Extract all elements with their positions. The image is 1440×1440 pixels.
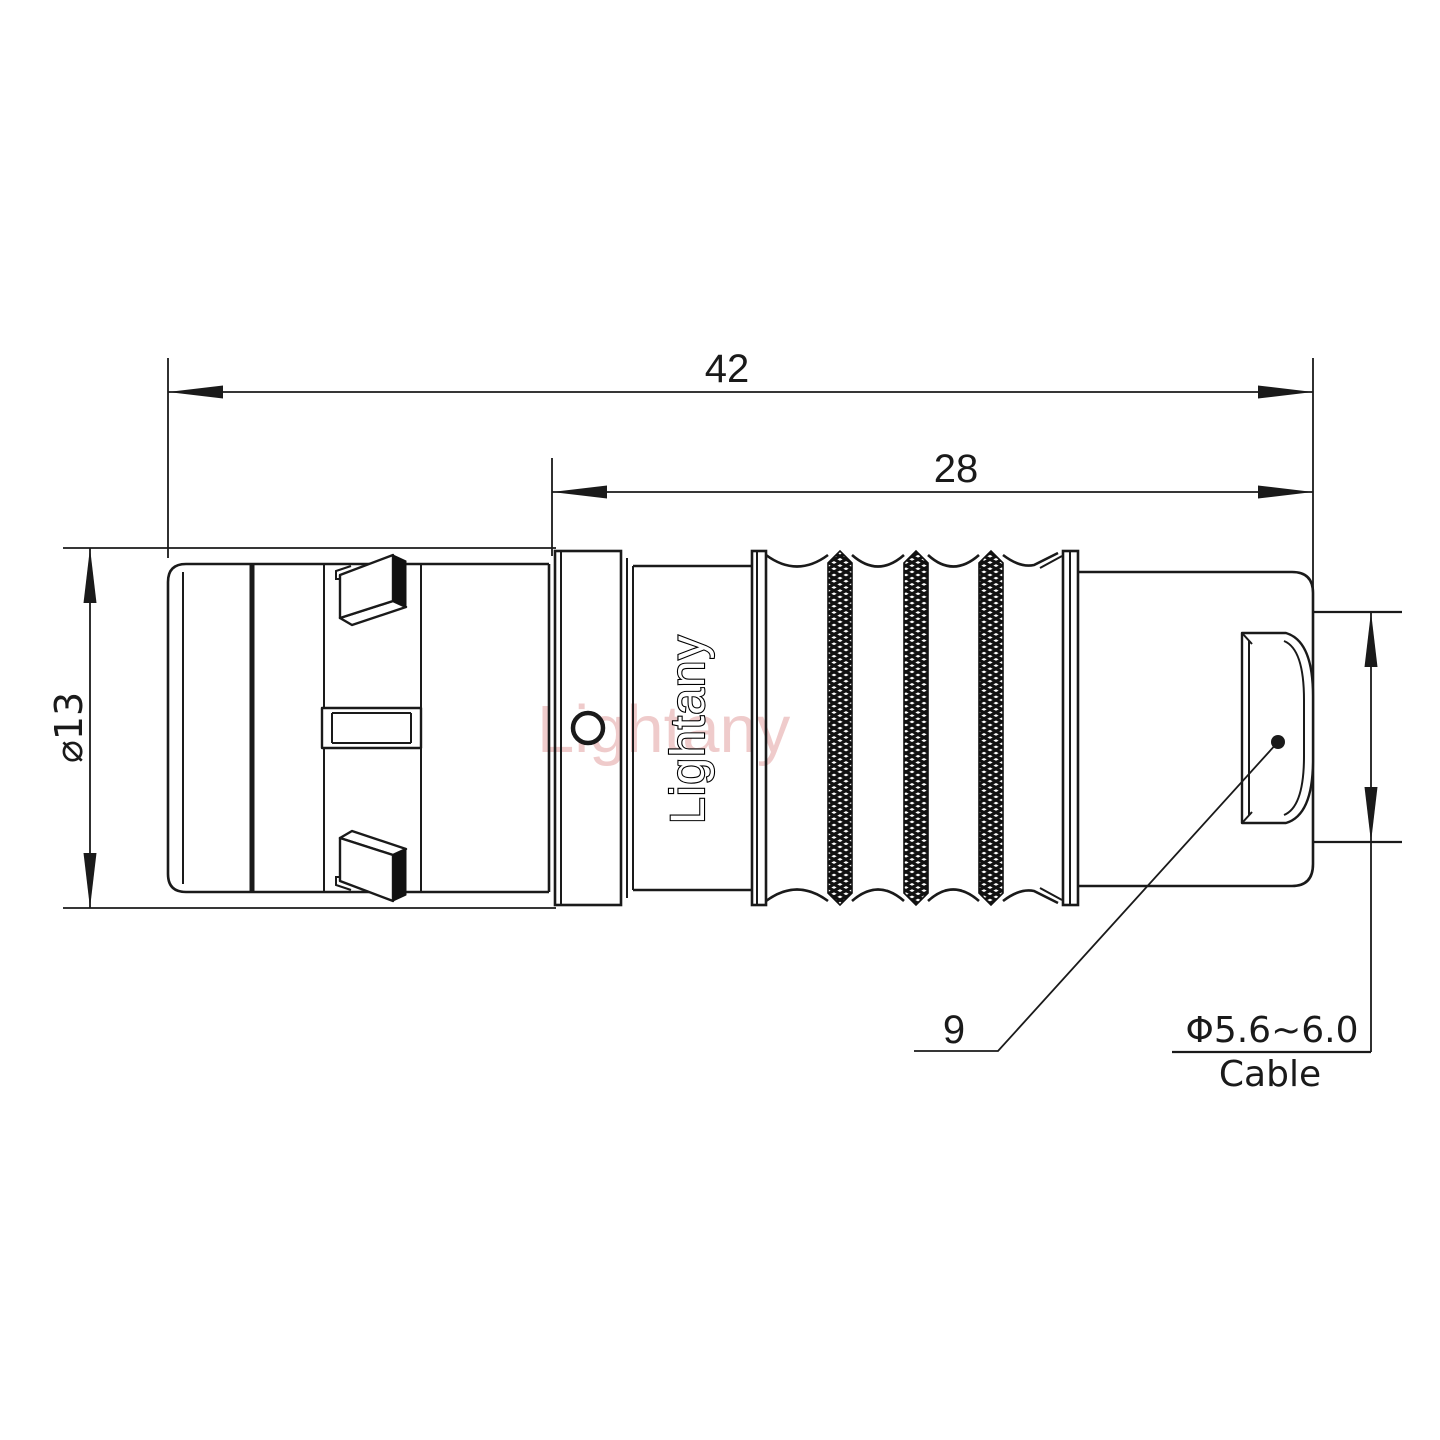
arrowhead-right-icon bbox=[1258, 386, 1313, 399]
clip-side-face bbox=[393, 555, 406, 607]
knurl-band-shape bbox=[979, 551, 1003, 905]
arrowhead-up-icon bbox=[84, 548, 97, 603]
arrowhead-left-icon bbox=[552, 486, 607, 499]
latch-clip-top bbox=[336, 555, 406, 625]
knurl-band-2 bbox=[904, 551, 928, 905]
shell-size-value: 9 bbox=[943, 1008, 965, 1052]
front-flange bbox=[752, 551, 766, 905]
knurled-grip-section bbox=[766, 551, 1078, 905]
arrowhead-down-icon bbox=[84, 853, 97, 908]
arrowhead-up-icon bbox=[1365, 612, 1378, 667]
arrowhead-right-icon bbox=[1258, 486, 1313, 499]
arrowhead-left-icon bbox=[168, 386, 223, 399]
connector-drawing-svg: 42 28 ⌀13 bbox=[0, 0, 1440, 1440]
knurl-band-1 bbox=[828, 551, 852, 905]
dim-front-diameter-value: ⌀13 bbox=[47, 692, 91, 763]
knurl-band-shape bbox=[828, 551, 852, 905]
dim-overall-length-value: 42 bbox=[705, 347, 750, 391]
arrowhead-down-icon bbox=[1365, 787, 1378, 842]
rear-nut-section bbox=[1078, 572, 1313, 886]
cable-entry-recess bbox=[1242, 633, 1313, 823]
dimension-body-length: 28 bbox=[552, 447, 1313, 556]
dim-body-length-value: 28 bbox=[934, 447, 979, 491]
latch-center-band bbox=[322, 708, 421, 748]
callout-shell-size: 9 bbox=[914, 742, 1278, 1052]
technical-drawing-canvas: Lightany 42 28 bbox=[0, 0, 1440, 1440]
cable-label: Cable bbox=[1219, 1054, 1321, 1095]
dimension-front-diameter: ⌀13 bbox=[47, 548, 556, 908]
collar-section bbox=[555, 551, 633, 905]
cable-range-value: Φ5.6~6.0 bbox=[1185, 1010, 1358, 1051]
logo-barrel-section: Lightany bbox=[633, 551, 766, 905]
knurl-band-3 bbox=[979, 551, 1003, 905]
logo-engraving-text: Lightany bbox=[662, 635, 715, 824]
knurl-band-shape bbox=[904, 551, 928, 905]
front-shell bbox=[168, 555, 549, 901]
vent-hole bbox=[573, 713, 603, 743]
leader-line bbox=[914, 742, 1278, 1051]
clip-side-face bbox=[393, 849, 406, 901]
latch-clip-bottom bbox=[336, 831, 406, 901]
